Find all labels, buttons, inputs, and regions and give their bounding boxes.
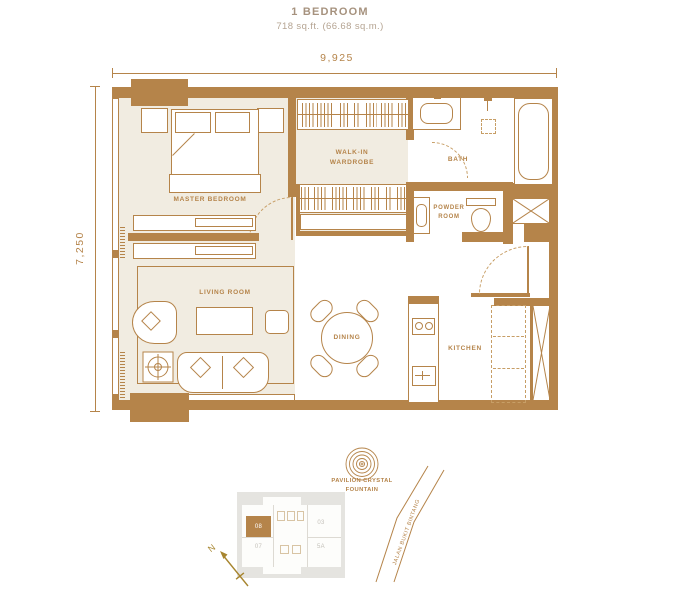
side-table: [265, 310, 289, 334]
service-shaft-small: [512, 198, 550, 224]
hanging-clothes-3: [340, 103, 349, 127]
console-bedroom-drawer: [195, 218, 253, 227]
dining-table: DINING: [321, 312, 373, 364]
width-dim-tick-left: [112, 68, 113, 78]
hanging-clothes-7: [398, 103, 406, 127]
shaft-x-lines: [513, 199, 549, 223]
nightstand-left: [141, 108, 168, 133]
width-dimension-line: [112, 73, 557, 74]
bath-label: BATH: [440, 155, 476, 165]
key-plan-stub-top: [263, 497, 301, 506]
height-dim-tick-top: [90, 86, 100, 87]
bathtub-inner: [518, 103, 549, 180]
window-frame-symbol-1: [120, 226, 125, 258]
master-bedroom-label: MASTER BEDROOM: [172, 195, 248, 205]
key-plan-lift-5: [292, 545, 301, 554]
hanging-clothes-14: [397, 187, 405, 210]
left-wall-cap-top: [112, 87, 119, 99]
nightstand-right: [257, 108, 284, 133]
height-dim-tick-bottom: [90, 411, 100, 412]
console-partition: [128, 233, 259, 241]
round-tray-table: [142, 351, 174, 383]
hob-burner-2: [425, 322, 433, 330]
wardrobe-base: [296, 231, 410, 236]
left-wall-mullion-1: [112, 250, 119, 258]
plan-title: 1 BEDROOM: [180, 6, 480, 18]
kitchen-counter: [408, 296, 439, 403]
balcony-sill: [188, 394, 295, 401]
cabinet-divider-1: [493, 336, 524, 337]
north-label: N: [206, 542, 217, 554]
bedroom-wardrobe-wall: [288, 87, 296, 197]
left-wall-mullion-2: [112, 330, 119, 338]
shaft-wall-step: [524, 224, 550, 242]
hanging-clothes-8: [301, 187, 310, 210]
toilet-bowl: [471, 208, 491, 232]
wardrobe-post-left: [296, 184, 300, 236]
hanging-clothes-10: [332, 187, 349, 210]
hanging-clothes-5: [366, 103, 377, 127]
entrance-door-arc: [479, 246, 528, 294]
bottom-left-column: [130, 393, 189, 422]
width-dim-tick-right: [556, 68, 557, 78]
bath-powder-wall: [414, 182, 506, 191]
key-plan-unit-5A: 5A: [311, 544, 331, 550]
height-dimension-label: 7,250: [74, 218, 86, 278]
sofa-divider: [222, 356, 223, 389]
console-living-drawer: [195, 246, 253, 255]
kitchen-label: KITCHEN: [443, 344, 487, 354]
hanging-clothes-1: [302, 103, 314, 127]
shower-drain: [481, 119, 496, 134]
width-dimension-label: 9,925: [262, 52, 412, 64]
hanging-clothes-2: [317, 103, 333, 127]
north-arrow-icon: N: [204, 534, 260, 590]
powder-washbasin: [416, 204, 427, 227]
kitchen-sink: [412, 366, 436, 386]
bed-pillow-left: [175, 112, 211, 133]
hanging-clothes-11: [353, 187, 366, 210]
key-plan-stub-bottom: [263, 566, 301, 574]
kitchen-counter-cap: [408, 296, 439, 304]
hanging-clothes-9: [314, 187, 326, 210]
powder-bottom-wall: [462, 232, 510, 242]
hanging-clothes-6: [381, 103, 394, 127]
wardrobe-post-right: [406, 184, 410, 236]
hanging-clothes-4: [354, 103, 360, 127]
powder-room-label: POWDER ROOM: [428, 204, 470, 222]
key-plan-lift-3: [297, 511, 304, 521]
key-plan-divider-4: [307, 537, 341, 538]
key-plan-divider-2: [307, 505, 308, 567]
dining-label: DINING: [334, 333, 361, 343]
left-window-wall: [112, 87, 119, 410]
sofa: [177, 352, 269, 393]
shower-head-icon: [484, 96, 492, 101]
key-plan-unit-08: 08: [255, 524, 262, 530]
cabinet-divider-2: [493, 368, 524, 369]
key-plan-lift-4: [280, 545, 289, 554]
key-plan-unit-03: 03: [311, 520, 331, 526]
height-dimension-line: [95, 86, 96, 412]
shower-arm: [487, 101, 488, 111]
coffee-table: [196, 307, 253, 335]
plan-area-subtitle: 718 sq.ft. (66.68 sq.m.): [180, 21, 480, 32]
hob-burner-1: [415, 322, 423, 330]
walk-in-wardrobe-label: WALK-IN WARDROBE: [317, 148, 387, 168]
key-plan-lift-1: [277, 511, 285, 521]
basin-tap-icon: [434, 95, 441, 99]
hanging-clothes-13: [386, 187, 393, 210]
key-plan-divider-1: [273, 505, 274, 567]
wardrobe-drawers: [300, 214, 407, 230]
top-left-column: [131, 79, 188, 106]
living-room-label: LIVING ROOM: [197, 288, 253, 298]
bed-pillow-right: [215, 112, 250, 133]
bed-foot-bench: [169, 174, 261, 193]
key-plan-lift-2: [287, 511, 295, 521]
bath-washbasin: [420, 103, 453, 124]
toilet-tank: [466, 198, 496, 206]
bath-lower-wall: [513, 183, 549, 198]
hanging-clothes-12: [371, 187, 380, 210]
kitchen-shaft-x: [533, 306, 550, 400]
sink-faucet-cross: [422, 371, 423, 380]
refrigerator-cabinet: [491, 305, 526, 403]
window-frame-symbol-2: [120, 352, 125, 398]
